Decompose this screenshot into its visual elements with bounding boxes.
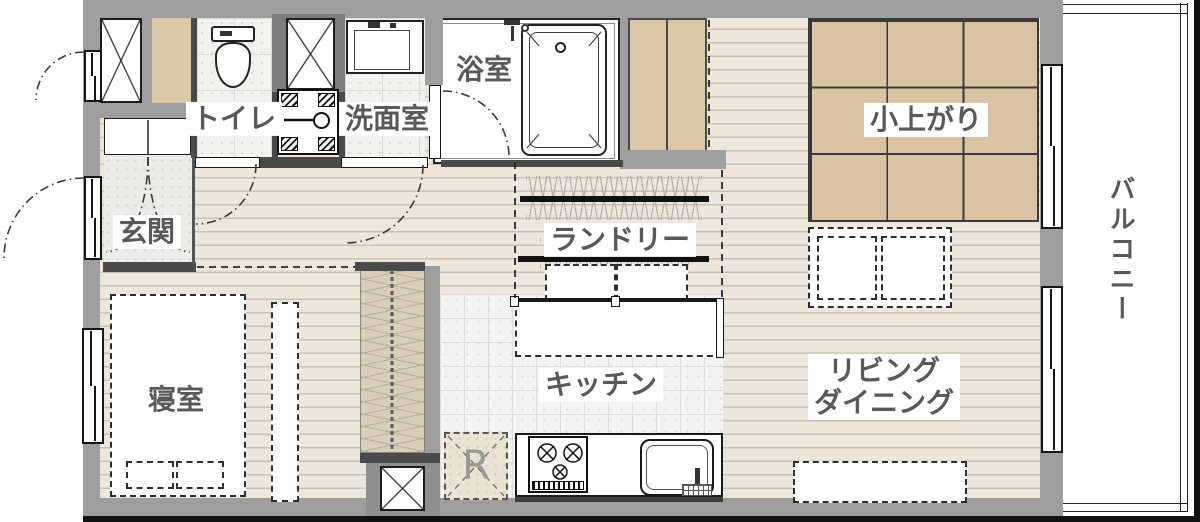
wall-closet-top [355, 262, 425, 271]
bedroom-closet [360, 266, 425, 453]
label-genkan: 玄関 [113, 215, 181, 249]
label-living-dining: リビング ダイニング [808, 354, 960, 420]
pillow-right [176, 461, 224, 489]
toilet-tank [211, 26, 255, 42]
wall-shaft-bottom-top [360, 453, 440, 463]
vanity-basin [354, 30, 410, 70]
washer-pan-corner-tr [318, 93, 335, 107]
toilet-door-threshold [195, 157, 260, 168]
sofa [793, 461, 967, 503]
washer-unit-right [616, 264, 688, 301]
label-balcony: バルコニー [1098, 174, 1140, 326]
washer-pan-drain [313, 112, 330, 129]
balcony-rail-top2 [1063, 13, 1188, 14]
kitchen-counter-front [515, 497, 723, 502]
entry-cabinet-tan [152, 18, 193, 115]
plan-border-right [1194, 0, 1200, 522]
sink-rack [682, 484, 712, 496]
window-left-top [84, 50, 102, 102]
wall-closet-kitchen [425, 266, 440, 456]
storage-cabinet-divider [666, 20, 668, 150]
dining-chair-right [881, 236, 945, 300]
shower-head [521, 24, 529, 32]
bedroom-window [82, 328, 104, 444]
balcony-rail-right2 [1187, 3, 1188, 512]
plan-border-bottom [83, 516, 1200, 522]
label-bath: 浴室 [450, 53, 518, 87]
vanity-knob [390, 23, 396, 28]
toilet-button [220, 31, 232, 36]
entry-storage-xbox [100, 18, 142, 103]
wall-bath-bottom [441, 160, 623, 167]
island-post-left [510, 296, 519, 307]
shower-hose [511, 26, 514, 41]
label-fridge: R [456, 442, 496, 490]
entry-door [84, 176, 102, 260]
island-post-mid [611, 296, 620, 307]
label-washroom: 洗面室 [339, 102, 435, 136]
washer-pan-corner-bl [281, 137, 298, 151]
washer-pan-corner-tl [281, 93, 298, 107]
bedroom-rug [271, 302, 299, 502]
island-counter [515, 300, 723, 357]
dining-chair-left [817, 236, 877, 300]
washer-pan-corner-br [318, 137, 335, 151]
balcony-rail-top [1063, 4, 1188, 5]
balcony-window-top [1041, 64, 1063, 229]
wall-washroom-bath [425, 18, 443, 85]
wall-storage-stub [620, 150, 726, 169]
label-laundry: ランドリー [544, 223, 696, 257]
washer-unit-left [545, 264, 616, 301]
floor-plan: 玄関 トイレ 洗面室 浴室 ランドリー 小上がり 寝室 キッチン リビング ダイ… [0, 0, 1200, 522]
balcony-rail-bottom [1063, 503, 1188, 504]
balcony-rail-bottom2 [1063, 511, 1188, 512]
shaft-xbox-bottom [380, 466, 425, 511]
washroom-door-threshold [341, 157, 428, 168]
label-koagari: 小上がり [864, 103, 988, 137]
label-bedroom: 寝室 [142, 383, 210, 417]
wall-bath-right [620, 18, 628, 152]
vanity-faucet [368, 22, 380, 28]
wall-toilet-left [191, 18, 197, 158]
balcony-window-bottom [1041, 286, 1063, 453]
laundry-pole-1 [520, 196, 709, 202]
shower-fixture [504, 20, 520, 25]
bathtub-drain [555, 42, 566, 53]
island-end-panel [716, 298, 724, 358]
pipe-shaft-xbox [286, 18, 335, 90]
genkan-edge-line [192, 156, 195, 264]
pillow-left [126, 461, 174, 489]
wall-hall-mid [258, 157, 344, 168]
genkan-sill [103, 262, 196, 272]
stove-grill [532, 481, 584, 490]
wall-top [83, 0, 1063, 18]
label-toilet: トイレ [186, 102, 282, 136]
shoe-cabinet [104, 118, 191, 155]
label-kitchen: キッチン [539, 368, 663, 402]
balcony-rail-right [1180, 3, 1181, 512]
